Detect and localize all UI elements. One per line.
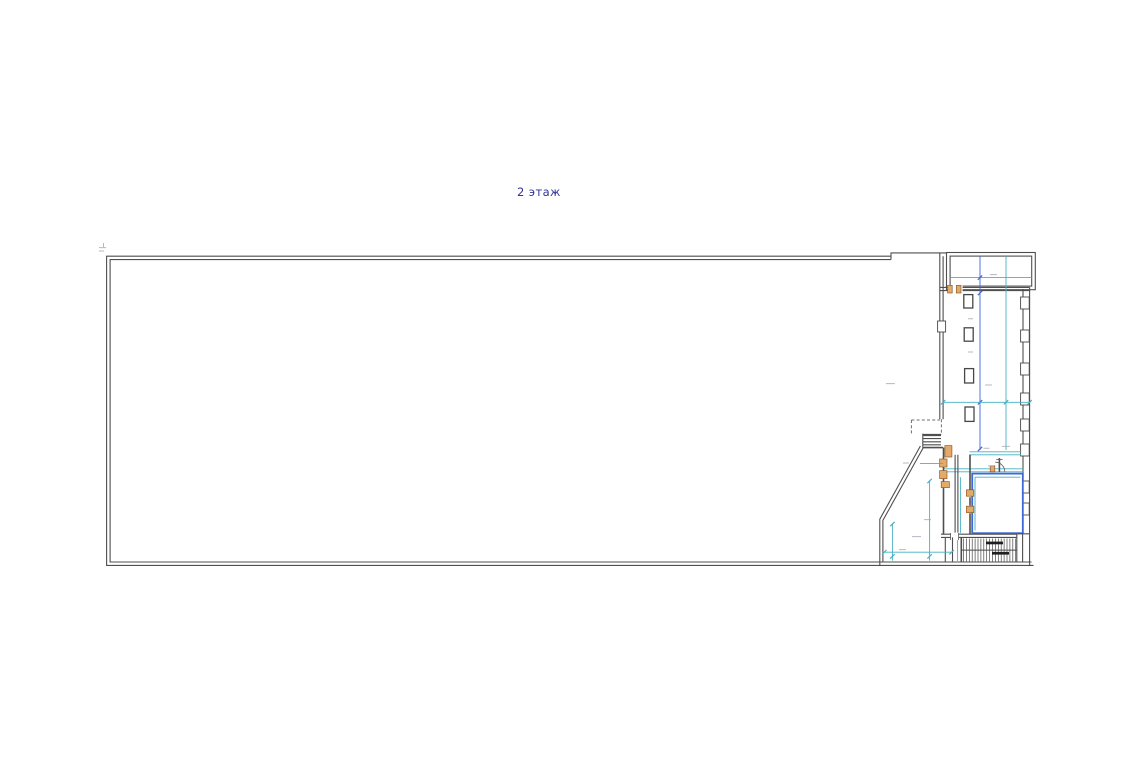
corner-reference-marks	[99, 243, 106, 251]
window-opening	[1021, 363, 1030, 375]
bottom-right-extension	[1017, 534, 1030, 562]
lower-left-room-dimensions	[882, 463, 960, 560]
window-opening	[1021, 330, 1030, 342]
diagonal-wall	[880, 446, 924, 565]
window-opening	[1021, 444, 1030, 456]
door-jamb-marker	[990, 466, 995, 472]
door-jamb-marker	[966, 490, 973, 496]
door-jamb-marker	[956, 285, 961, 293]
wall-niche	[938, 321, 946, 332]
column	[965, 369, 974, 383]
stair-direction-arrow	[986, 542, 1003, 545]
dimension-text-marks	[99, 243, 1010, 550]
landing-steps	[923, 434, 943, 448]
door-jamb-marker	[940, 471, 947, 479]
door-jamb-marker	[945, 446, 952, 457]
main-hall-walls	[107, 253, 1034, 566]
staircase	[941, 533, 1017, 562]
window-opening	[1021, 297, 1030, 309]
mid-partitions	[944, 452, 1023, 472]
column	[965, 407, 974, 421]
door-jamb-marker	[948, 285, 953, 293]
door-jamb-marker	[941, 482, 949, 488]
window-opening	[1021, 419, 1030, 431]
door-jamb-marker	[966, 506, 973, 512]
drawing-canvas: 2 этаж	[0, 0, 1124, 768]
stair-direction-arrow	[992, 552, 1009, 555]
column	[964, 328, 973, 341]
corridor-walls	[940, 446, 974, 534]
lower-right-room	[972, 474, 1023, 534]
column	[964, 295, 973, 308]
hidden-dashed-lines	[911, 419, 941, 435]
floor-plan	[0, 0, 1124, 768]
top-annex	[947, 253, 1036, 290]
